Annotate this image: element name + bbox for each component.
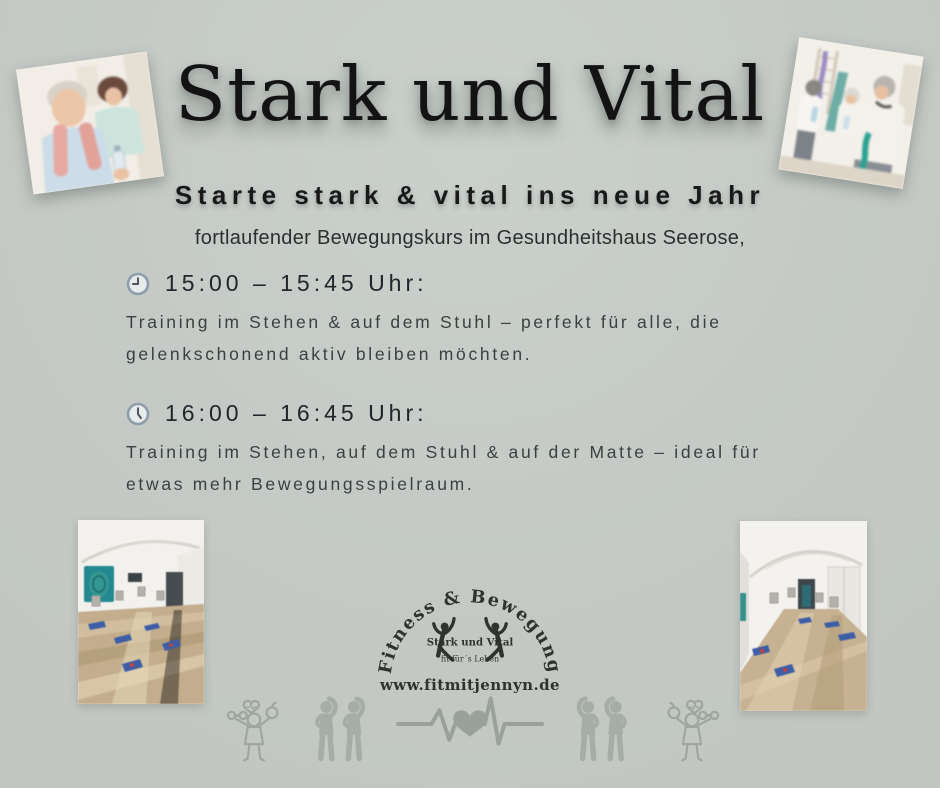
clock-icon	[126, 272, 150, 296]
brand-logo: Fitness & Bewegung Stark und Vital fit f…	[0, 580, 940, 700]
session-block-2: 16:00 – 16:45 Uhr: Training im Stehen, a…	[126, 400, 826, 500]
session-1-time: 15:00 – 15:45 Uhr:	[165, 270, 428, 297]
session-1-line-2: gelenkschonend aktiv bleiben möchten.	[126, 344, 532, 364]
heartbeat-heart-icon	[396, 692, 544, 756]
logo-tagline-text: fit für´s Leben	[441, 655, 499, 664]
page-title: Stark und Vital	[0, 50, 940, 138]
stretching-people-icon	[572, 696, 630, 764]
clock-icon	[126, 402, 150, 426]
session-1-time-row: 15:00 – 15:45 Uhr:	[126, 270, 826, 297]
flyer-canvas: Stark und Vital Starte stark & vital ins…	[0, 0, 940, 788]
session-2-time-row: 16:00 – 16:45 Uhr:	[126, 400, 826, 427]
decorative-icon-row	[0, 684, 940, 774]
session-2-description: Training im Stehen, auf dem Stuhl & auf …	[126, 436, 826, 500]
session-2-line-1: Training im Stehen, auf dem Stuhl & auf …	[126, 442, 761, 462]
fitness-figure-dumbbell-heart-apple-icon	[221, 692, 287, 764]
subtitle: Starte stark & vital ins neue Jahr	[0, 180, 940, 211]
session-1-line-1: Training im Stehen & auf dem Stuhl – per…	[126, 312, 722, 332]
logo-brand-text: Stark und Vital	[427, 637, 514, 649]
stretching-people-icon	[312, 696, 370, 764]
session-1-description: Training im Stehen & auf dem Stuhl – per…	[126, 306, 826, 370]
intro-line: fortlaufender Bewegungskurs im Gesundhei…	[0, 227, 940, 250]
brand-logo-image: Fitness & Bewegung Stark und Vital fit f…	[364, 580, 576, 700]
session-2-line-2: etwas mehr Bewegungsspielraum.	[126, 474, 475, 494]
session-block-1: 15:00 – 15:45 Uhr: Training im Stehen & …	[126, 270, 826, 370]
fitness-figure-dumbbell-heart-apple-icon	[659, 692, 725, 764]
session-2-time: 16:00 – 16:45 Uhr:	[165, 400, 428, 427]
